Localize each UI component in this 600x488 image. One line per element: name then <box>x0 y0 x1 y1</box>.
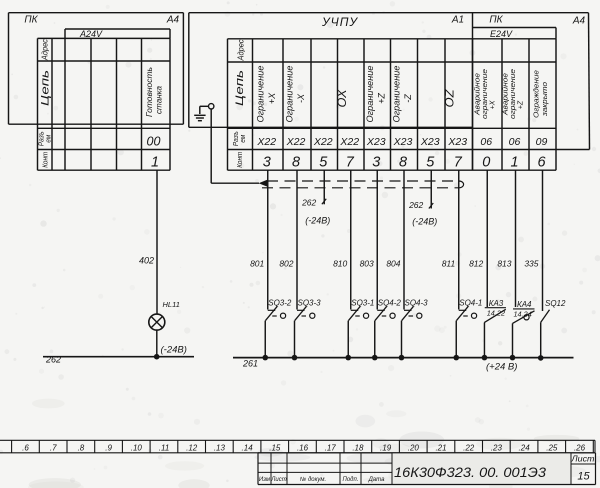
svg-text:.13: .13 <box>214 443 226 452</box>
svg-text:Х22: Х22 <box>286 136 306 148</box>
svg-text:ПК: ПК <box>24 15 38 26</box>
svg-text:802: 802 <box>279 259 293 269</box>
svg-text:3: 3 <box>263 155 271 171</box>
svg-text:(+24 В): (+24 В) <box>486 362 517 373</box>
svg-text:402: 402 <box>139 256 154 266</box>
svg-text:-Z: -Z <box>403 94 413 103</box>
svg-text:Лист: Лист <box>570 454 594 464</box>
svg-text:Х22: Х22 <box>339 136 359 148</box>
svg-text:Цепь: Цепь <box>234 70 246 106</box>
svg-text:Аварийное: Аварийное <box>502 73 510 116</box>
svg-text:.14: .14 <box>242 443 254 452</box>
svg-text:.20: .20 <box>408 443 420 452</box>
svg-text:09: 09 <box>536 136 548 148</box>
svg-text:КА4: КА4 <box>517 300 532 309</box>
svg-text:HL11: HL11 <box>163 300 180 309</box>
svg-text:8: 8 <box>292 155 300 171</box>
svg-text:7: 7 <box>454 155 463 171</box>
svg-text:5: 5 <box>319 155 328 171</box>
svg-text:.19: .19 <box>380 443 392 452</box>
svg-text:SQ12: SQ12 <box>545 299 566 308</box>
svg-text:Х22: Х22 <box>256 136 276 148</box>
svg-text:812: 812 <box>469 259 483 269</box>
svg-text:.23: .23 <box>491 443 503 452</box>
svg-text:Конт: Конт <box>237 152 244 168</box>
svg-text:Разъ: Разъ <box>233 131 240 146</box>
svg-text:.26: .26 <box>574 443 586 452</box>
svg-text:.6: .6 <box>22 443 29 452</box>
svg-text:+Х: +Х <box>489 100 496 109</box>
svg-text:.10: .10 <box>131 443 143 452</box>
svg-text:14.22: 14.22 <box>487 308 505 317</box>
svg-text:Х23: Х23 <box>393 136 413 148</box>
svg-text:.24: .24 <box>519 443 531 452</box>
svg-text:.16: .16 <box>297 443 309 452</box>
svg-text:(-24В): (-24В) <box>305 216 330 226</box>
svg-text:06: 06 <box>509 136 521 148</box>
svg-text:закрыто: закрыто <box>540 82 549 117</box>
svg-text:261: 261 <box>242 359 258 369</box>
svg-text:262: 262 <box>408 200 423 210</box>
svg-text:КА3: КА3 <box>489 299 504 308</box>
svg-text:Ограничение: Ограничение <box>392 66 402 123</box>
svg-text:Адрес: Адрес <box>41 39 50 61</box>
svg-text:16К30Ф323. 00. 001Э3: 16К30Ф323. 00. 001Э3 <box>394 465 547 480</box>
svg-text:Е24V: Е24V <box>490 29 513 39</box>
svg-text:ем: ем <box>240 135 247 143</box>
svg-text:335: 335 <box>524 259 538 269</box>
svg-text:Цепь: Цепь <box>39 70 51 106</box>
svg-text:Ограничение: Ограничение <box>365 66 375 123</box>
svg-text:А4: А4 <box>166 15 180 26</box>
svg-text:ограничение: ограничение <box>482 69 489 119</box>
svg-text:SQ3-1: SQ3-1 <box>351 299 374 308</box>
svg-text:14.24: 14.24 <box>514 310 532 319</box>
svg-text:Ограничение: Ограничение <box>255 66 265 123</box>
svg-text:УЧПУ: УЧПУ <box>321 15 358 29</box>
svg-text:Дата: Дата <box>368 477 385 483</box>
svg-text:станка: станка <box>154 85 163 114</box>
svg-text:262: 262 <box>45 355 61 365</box>
svg-text:Конт: Конт <box>42 152 49 168</box>
svg-text:.22: .22 <box>463 443 475 452</box>
svg-text:.17: .17 <box>325 443 337 452</box>
svg-text:ограничение: ограничение <box>510 69 517 119</box>
svg-text:804: 804 <box>386 259 400 269</box>
svg-text:Х23: Х23 <box>366 136 386 148</box>
svg-text:3: 3 <box>372 155 380 171</box>
svg-text:+Z: +Z <box>376 93 386 104</box>
svg-text:1: 1 <box>510 155 518 171</box>
svg-text:SQ3-2: SQ3-2 <box>268 299 292 308</box>
svg-text:(-24В): (-24В) <box>161 345 187 356</box>
svg-text:262: 262 <box>301 198 316 208</box>
svg-text:.7: .7 <box>50 443 57 452</box>
svg-text:Аварийное: Аварийное <box>473 73 481 116</box>
svg-text:.21: .21 <box>435 443 446 452</box>
svg-text:06: 06 <box>480 136 492 148</box>
svg-text:.11: .11 <box>159 443 170 452</box>
svg-text:SQ4-1: SQ4-1 <box>459 299 482 308</box>
svg-text:Х23: Х23 <box>420 136 440 148</box>
svg-text:Х23: Х23 <box>447 136 467 148</box>
svg-text:+Х: +Х <box>267 92 277 104</box>
svg-text:Изм: Изм <box>259 477 270 483</box>
svg-text:ем: ем <box>45 135 52 143</box>
svg-text:Готовность: Готовность <box>145 67 154 117</box>
svg-text:А4: А4 <box>572 16 586 27</box>
svg-text:Ограничение: Ограничение <box>285 66 295 123</box>
svg-text:5: 5 <box>426 155 435 171</box>
svg-text:SQ4-3: SQ4-3 <box>405 299 429 308</box>
svg-text:6: 6 <box>537 155 546 171</box>
svg-text:А1: А1 <box>451 15 464 26</box>
svg-text:810: 810 <box>333 259 347 269</box>
svg-text:SQ4-2: SQ4-2 <box>378 299 402 308</box>
svg-text:SQ3-3: SQ3-3 <box>298 299 322 308</box>
svg-text:Разъ: Разъ <box>38 131 45 146</box>
svg-text:.12: .12 <box>186 443 198 452</box>
svg-text:1: 1 <box>151 155 159 171</box>
svg-text:A24V: A24V <box>79 29 103 39</box>
svg-text:15: 15 <box>577 471 590 483</box>
svg-text:7: 7 <box>346 155 355 171</box>
svg-text:-Х: -Х <box>296 93 306 103</box>
svg-text:№ докум.: № докум. <box>300 476 326 483</box>
svg-text:.8: .8 <box>78 443 85 452</box>
svg-text:ПК: ПК <box>489 15 503 26</box>
svg-text:803: 803 <box>360 259 374 269</box>
svg-text:.18: .18 <box>352 443 364 452</box>
svg-text:Х22: Х22 <box>313 136 333 148</box>
svg-text:811: 811 <box>442 259 456 269</box>
svg-text:Подп.: Подп. <box>343 477 359 483</box>
svg-text:Лист: Лист <box>270 477 286 483</box>
svg-text:00: 00 <box>147 135 161 149</box>
svg-text:ОZ: ОZ <box>443 89 457 108</box>
svg-text:Адрес: Адрес <box>237 40 246 62</box>
svg-text:(-24В): (-24В) <box>412 217 437 227</box>
svg-text:.15: .15 <box>269 443 281 452</box>
svg-text:ОХ: ОХ <box>335 88 349 107</box>
svg-text:.9: .9 <box>105 443 112 452</box>
svg-text:0: 0 <box>482 155 490 171</box>
svg-text:8: 8 <box>399 155 407 171</box>
svg-text:.25: .25 <box>546 443 558 452</box>
svg-text:801: 801 <box>250 259 264 269</box>
svg-text:813: 813 <box>497 259 511 269</box>
svg-text:+Z: +Z <box>518 100 525 109</box>
